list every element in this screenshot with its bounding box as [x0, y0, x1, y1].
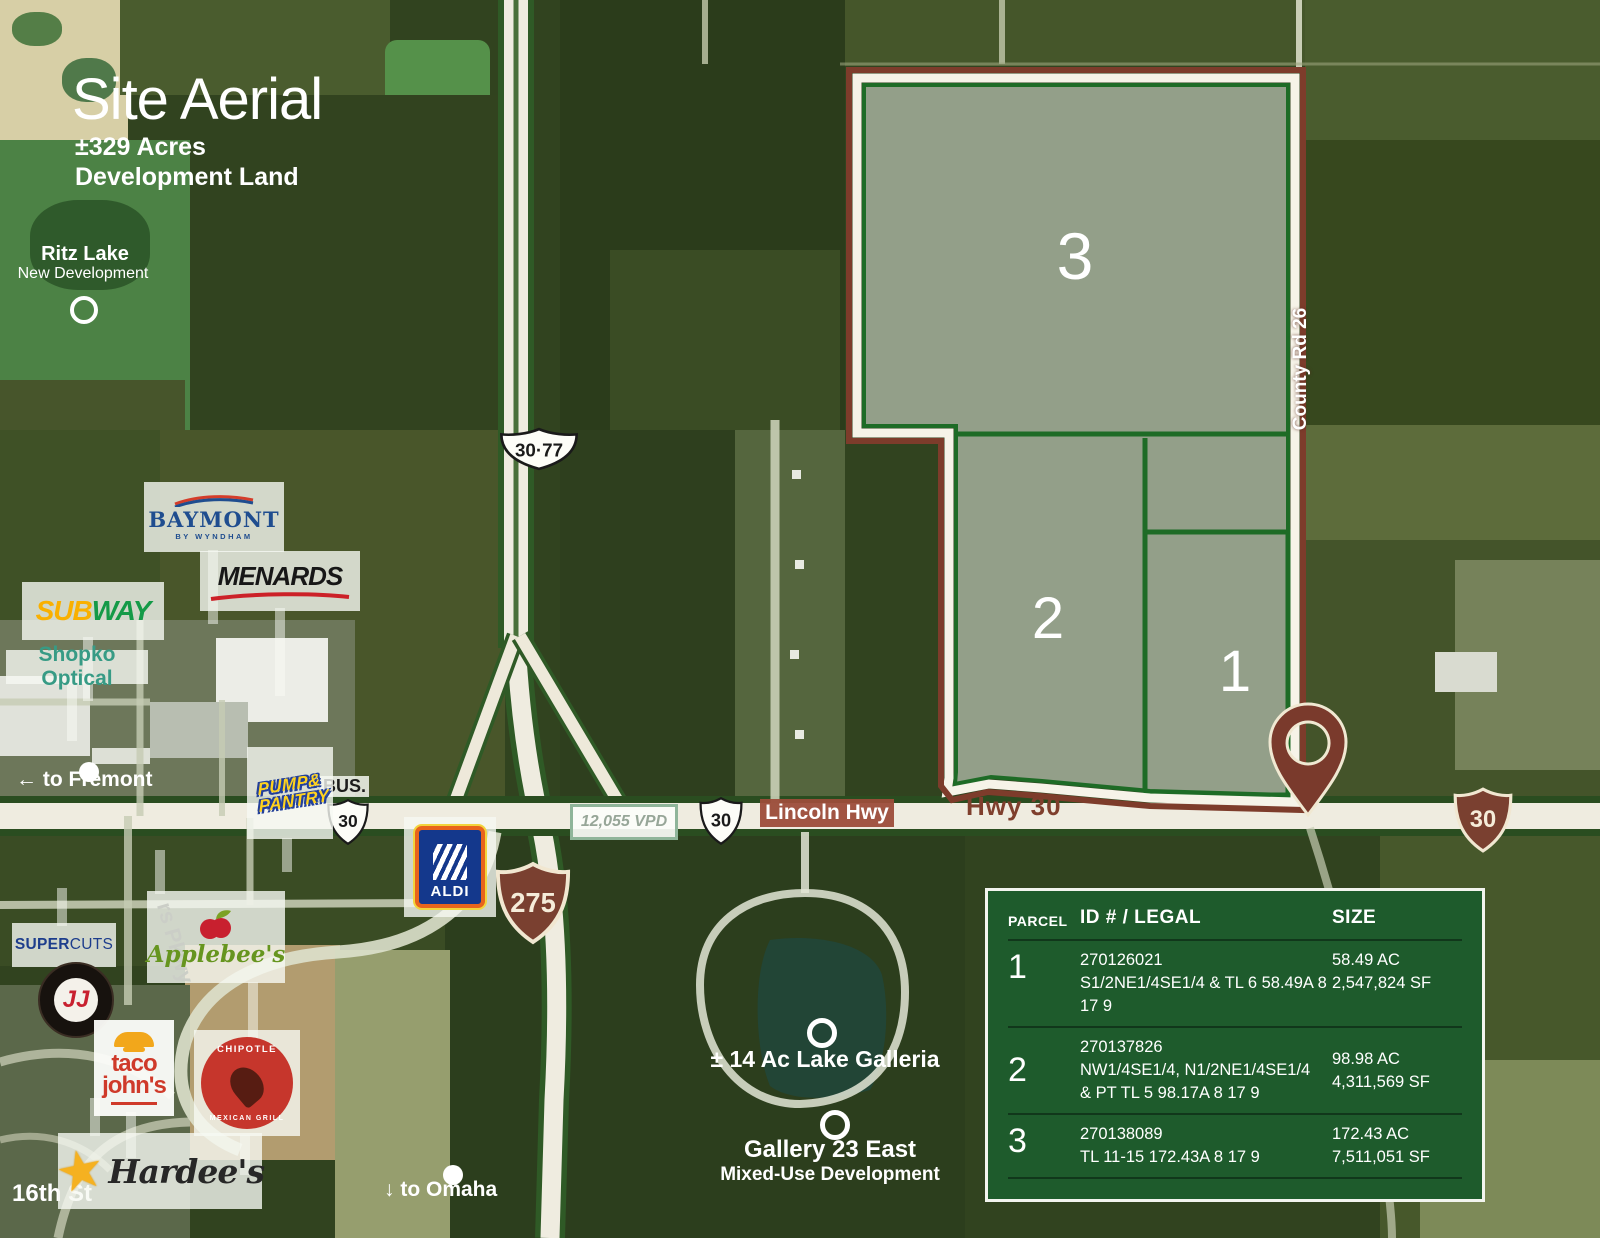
- svg-text:30: 30: [1470, 807, 1496, 833]
- baymont-logo: BAYMONT BY WYNDHAM: [144, 482, 284, 552]
- hardees-logo: ★ Hardee's: [58, 1133, 262, 1209]
- menards-swoosh-icon: [205, 592, 355, 602]
- col-parcel: PARCEL: [1008, 907, 1080, 929]
- down-arrow-icon: ↓: [384, 1178, 395, 1201]
- svg-text:30: 30: [338, 811, 357, 831]
- chipotle-logo: CHIPOTLE MEXICAN GRILL: [194, 1030, 300, 1136]
- shield-30-lincoln: 30: [698, 796, 744, 846]
- gallery-23-label: Gallery 23 East: [700, 1136, 960, 1164]
- chipotle-pepper-icon: [223, 1061, 270, 1109]
- taco-johns-hat-icon: [114, 1032, 154, 1047]
- table-row: 2 270137826 NW1/4SE1/4, N1/2NE1/4SE1/4 &…: [1008, 1026, 1462, 1113]
- baymont-swoosh-icon: [169, 493, 259, 507]
- col-size: SIZE: [1332, 907, 1468, 929]
- chipotle-medallion-icon: CHIPOTLE MEXICAN GRILL: [201, 1037, 293, 1129]
- menards-logo: MENARDS: [200, 551, 360, 611]
- aldi-a-stripes-icon: [433, 844, 467, 880]
- subway-logo: SUBWAY: [22, 582, 164, 640]
- parcel-1-number: 1: [1205, 638, 1265, 705]
- aldi-badge-icon: ALDI: [415, 826, 485, 908]
- parcel-table-header: PARCEL ID # / LEGAL SIZE: [1008, 907, 1462, 939]
- svg-text:275: 275: [510, 887, 556, 918]
- table-row: 3 270138089 TL 11-15 172.43A 8 17 9 172.…: [1008, 1113, 1462, 1179]
- vpd-badge: 12,055 VPD: [570, 804, 678, 840]
- title-land: Development Land: [75, 163, 299, 192]
- hardees-star-icon: ★: [51, 1142, 108, 1199]
- supercuts-logo: SUPERCUTS: [12, 923, 116, 967]
- lake-galleria-marker-icon: [807, 1018, 837, 1048]
- shopko-optical-logo: Shopko Optical: [6, 650, 148, 684]
- shield-275: 275: [494, 860, 572, 946]
- ritz-lake-label: Ritz Lake: [5, 243, 165, 266]
- col-id-legal: ID # / LEGAL: [1080, 907, 1332, 929]
- site-aerial-map: Hwy 30 rs Pkwy 3 2 1 County Rd 26 Site A…: [0, 0, 1600, 1238]
- taco-johns-rule: [111, 1102, 157, 1105]
- aldi-logo: ALDI: [404, 817, 496, 917]
- shield-30-77: 30·77: [496, 426, 582, 472]
- parcel-3-number: 3: [1045, 218, 1105, 294]
- applebees-logo: Applebee's: [147, 891, 285, 983]
- parcel-table: PARCEL ID # / LEGAL SIZE 1 270126021 S1/…: [985, 888, 1485, 1202]
- county-rd-26-label: County Rd 26: [1290, 274, 1312, 464]
- title-acres: ±329 Acres: [75, 133, 206, 162]
- gallery-23-sublabel: Mixed-Use Development: [700, 1164, 960, 1186]
- svg-text:30·77: 30·77: [515, 439, 563, 460]
- pump-pantry-logo: PUMP& PANTRY: [247, 747, 333, 839]
- left-arrow-icon: ←: [16, 768, 37, 791]
- lake-galleria-label: ± 14 Ac Lake Galleria: [690, 1046, 960, 1073]
- page-title: Site Aerial: [72, 66, 322, 133]
- taco-johns-logo: taco john's: [94, 1020, 174, 1116]
- table-row: 1 270126021 S1/2NE1/4SE1/4 & TL 6 58.49A…: [1008, 939, 1462, 1026]
- parcel-2-number: 2: [1018, 585, 1078, 652]
- ritz-lake-sublabel: New Development: [3, 265, 163, 283]
- lincoln-hwy-label: Lincoln Hwy: [760, 799, 894, 827]
- to-omaha-label: ↓ to Omaha: [384, 1178, 497, 1202]
- svg-text:30: 30: [711, 810, 731, 830]
- applebees-apple-icon: [197, 907, 235, 941]
- shield-30-east: 30: [1452, 786, 1514, 854]
- ritz-lake-marker-icon: [70, 296, 98, 324]
- to-fremont-label: ← to Fremont: [16, 768, 153, 792]
